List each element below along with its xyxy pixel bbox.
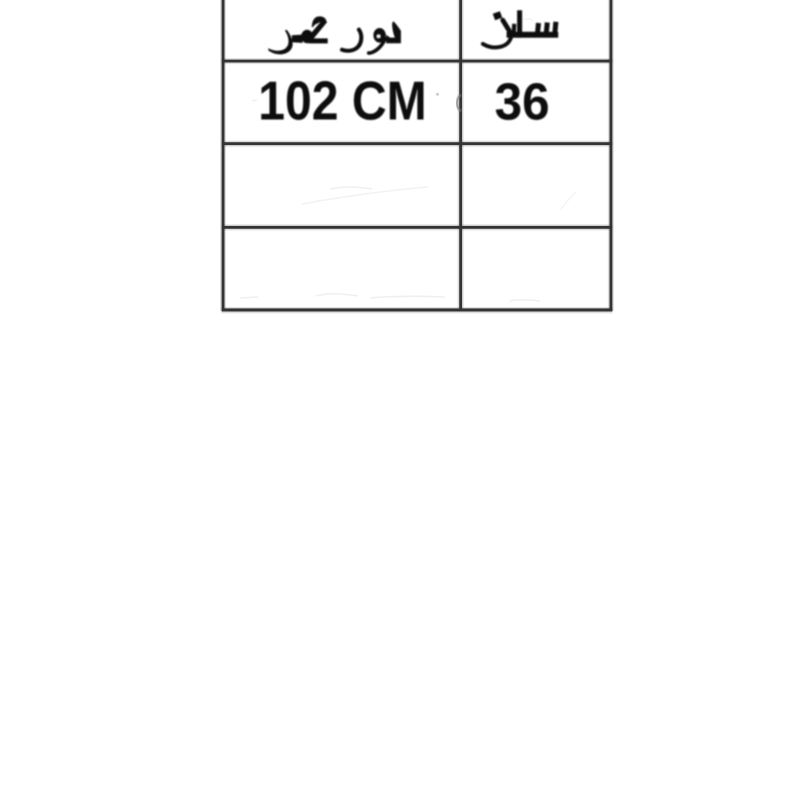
svg-text:36: 36 — [495, 74, 550, 132]
svg-text:102 CM: 102 CM — [258, 70, 427, 132]
